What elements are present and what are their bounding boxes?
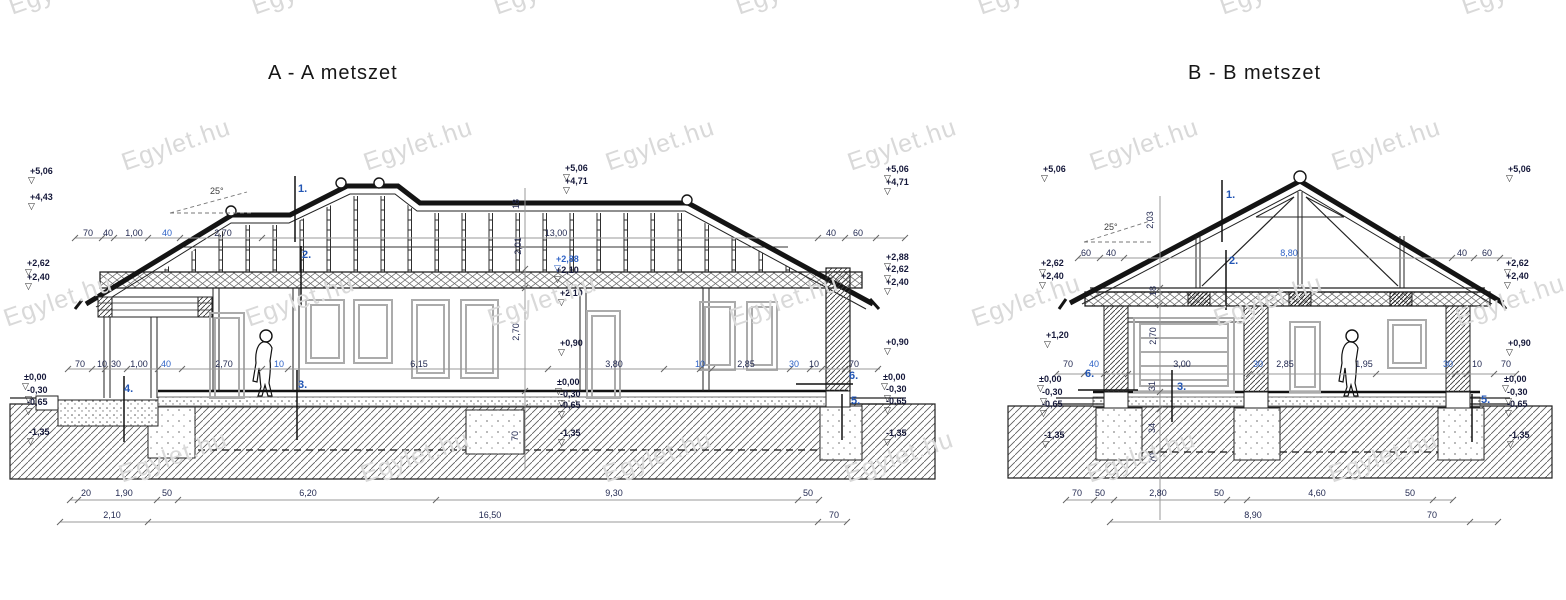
- walls: [98, 268, 906, 407]
- slope-angle-mark: [170, 192, 252, 213]
- roof-vent: [336, 178, 346, 188]
- floor-slab: [158, 391, 848, 407]
- roof-vent: [682, 195, 692, 205]
- attic-structure: [160, 196, 798, 272]
- slope-angle-mark: [1084, 221, 1154, 242]
- roof-truss: [1059, 171, 1506, 309]
- section-bb-drawing: [1008, 171, 1552, 525]
- section-aa-drawing: [10, 176, 935, 525]
- drawing-sheet: A - A metszet B - B metszet 70401,00402,…: [0, 0, 1566, 600]
- section-aa-title: A - A metszet: [268, 62, 398, 85]
- floor-slab: [1093, 392, 1480, 407]
- section-bb-title: B - B metszet: [1188, 62, 1321, 85]
- door-window-frames: [210, 300, 777, 398]
- roof-vent: [374, 178, 384, 188]
- roof-vent: [226, 206, 236, 216]
- door-window-frames: [1134, 318, 1426, 392]
- ridge-vent: [1294, 171, 1306, 183]
- ceiling-insulation: [100, 272, 862, 288]
- ceiling-insulation: [1085, 292, 1490, 306]
- sections-drawing: [0, 0, 1566, 600]
